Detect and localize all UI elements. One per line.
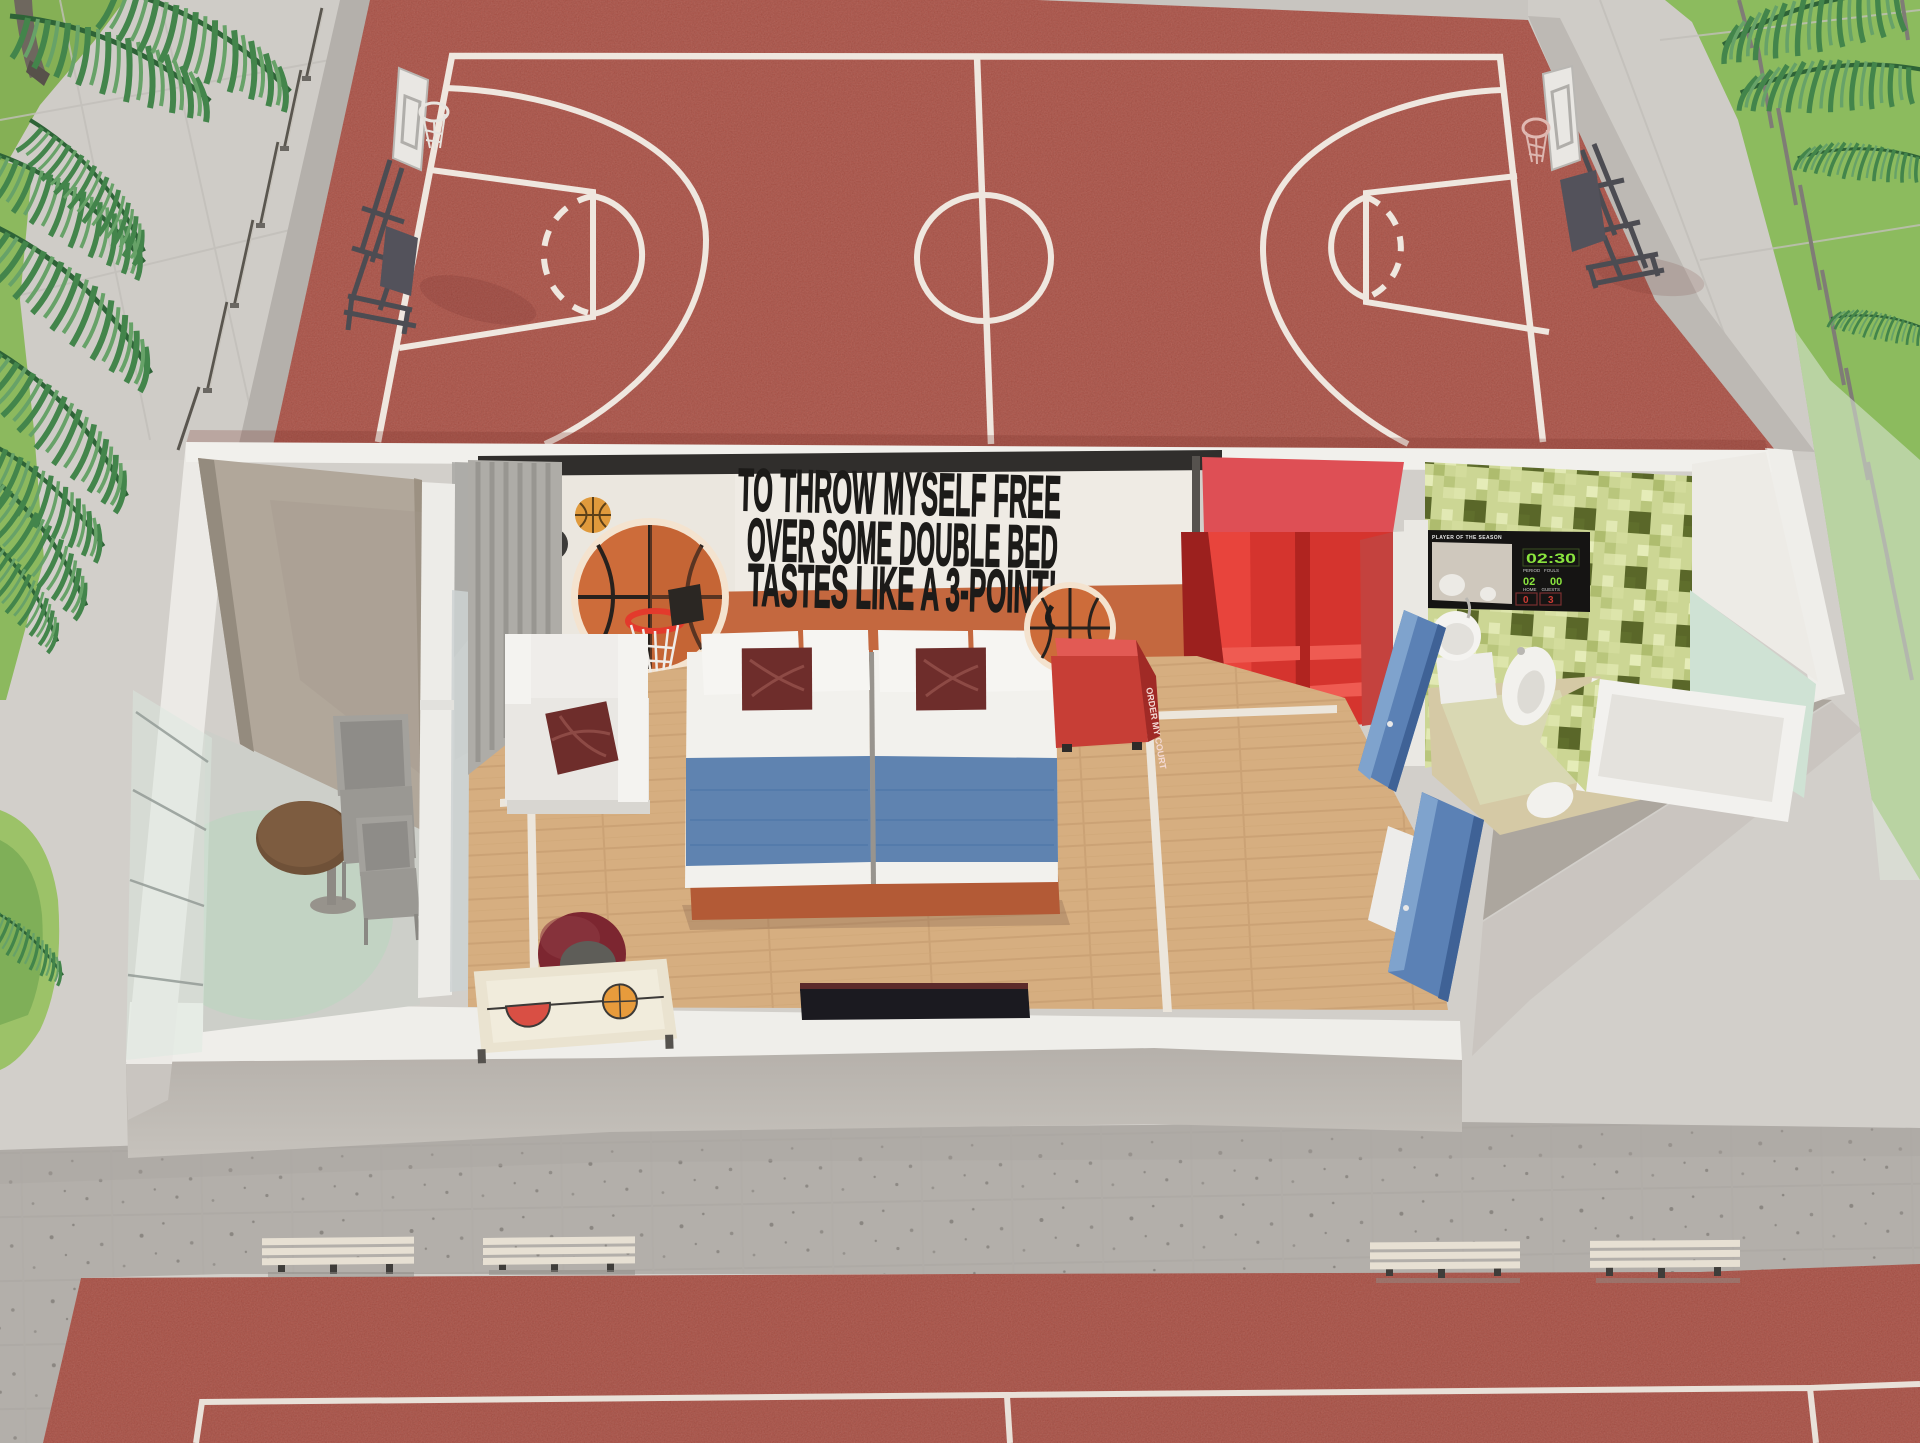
svg-text:PLAYER OF THE SEASON: PLAYER OF THE SEASON [1432, 535, 1502, 541]
svg-text:TASTES LIKE A 3-POINT!: TASTES LIKE A 3-POINT! [747, 551, 1058, 626]
svg-text:3: 3 [1548, 595, 1554, 606]
svg-text:PERIOD FOULS: PERIOD FOULS [1523, 568, 1559, 573]
svg-text:0: 0 [1523, 595, 1529, 606]
svg-text:02:30: 02:30 [1526, 550, 1576, 566]
svg-text:HOME GUESTS: HOME GUESTS [1523, 587, 1560, 592]
